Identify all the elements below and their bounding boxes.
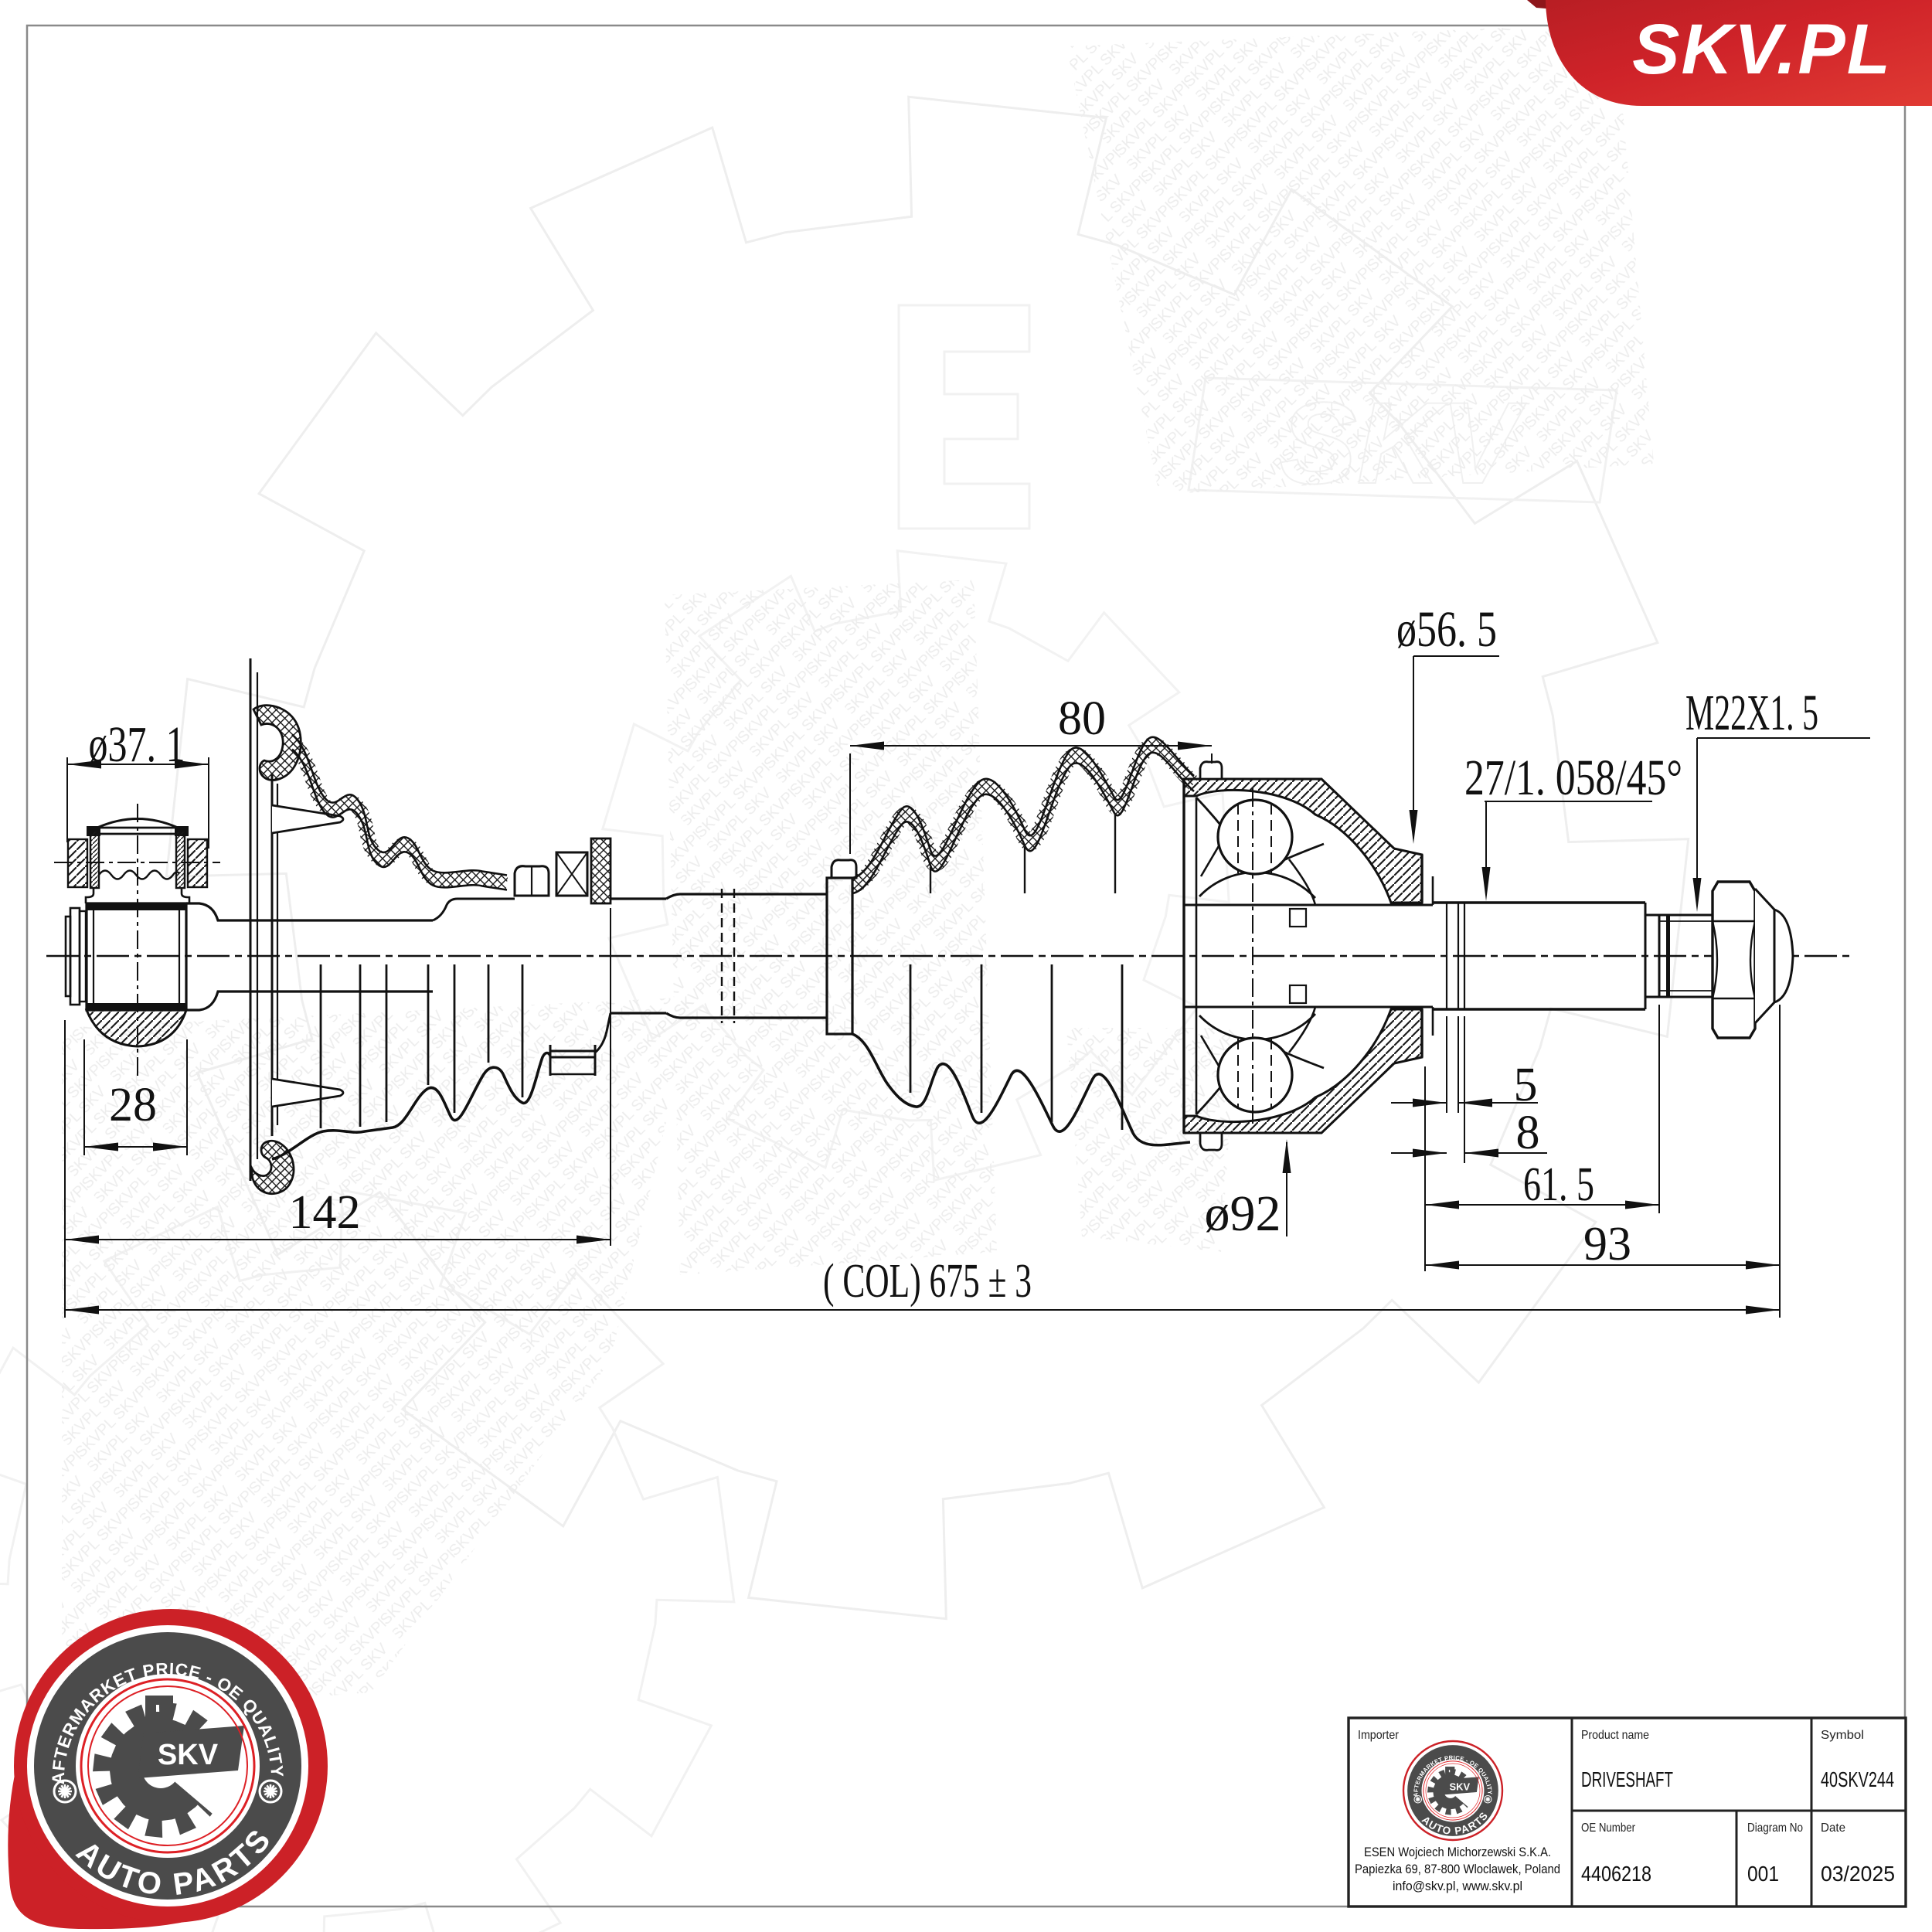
svg-text:DRIVESHAFT: DRIVESHAFT [1581, 1767, 1673, 1791]
svg-text:( COL) 675 ± 3: ( COL) 675 ± 3 [823, 1255, 1032, 1308]
svg-text:001: 001 [1747, 1862, 1779, 1886]
svg-text:Symbol: Symbol [1821, 1729, 1864, 1742]
svg-text:93: 93 [1583, 1218, 1631, 1270]
svg-text:ø92: ø92 [1205, 1185, 1281, 1242]
svg-text:80: 80 [1058, 692, 1106, 745]
svg-text:142: 142 [289, 1186, 361, 1239]
svg-text:40SKV244: 40SKV244 [1821, 1767, 1894, 1791]
svg-text:SKV: SKV [158, 1739, 219, 1771]
svg-text:Product name: Product name [1581, 1729, 1649, 1742]
svg-text:03/2025: 03/2025 [1821, 1862, 1895, 1886]
svg-text:27/1. 058/45°: 27/1. 058/45° [1464, 750, 1682, 806]
svg-text:28: 28 [109, 1079, 157, 1131]
svg-text:ø56. 5: ø56. 5 [1396, 601, 1497, 658]
svg-text:ESEN Wojciech Michorzewski S.K: ESEN Wojciech Michorzewski S.K.A. [1364, 1845, 1551, 1859]
svg-text:Papiezka 69, 87-800 Wloclawek,: Papiezka 69, 87-800 Wloclawek, Poland [1355, 1862, 1560, 1876]
svg-text:ø37. 1: ø37. 1 [89, 716, 185, 773]
svg-text:SKV.PL: SKV.PL [1632, 10, 1892, 89]
svg-text:Importer: Importer [1358, 1729, 1400, 1742]
svg-text:61. 5: 61. 5 [1523, 1158, 1594, 1211]
svg-text:M22X1. 5: M22X1. 5 [1685, 685, 1818, 741]
svg-text:4406218: 4406218 [1581, 1862, 1651, 1886]
svg-text:OE Number: OE Number [1581, 1821, 1636, 1835]
svg-text:Date: Date [1821, 1821, 1845, 1835]
svg-text:8: 8 [1516, 1107, 1540, 1159]
svg-text:Diagram No: Diagram No [1747, 1821, 1803, 1835]
svg-text:info@skv.pl, www.skv.pl: info@skv.pl, www.skv.pl [1393, 1879, 1522, 1893]
svg-text:5: 5 [1514, 1059, 1538, 1111]
